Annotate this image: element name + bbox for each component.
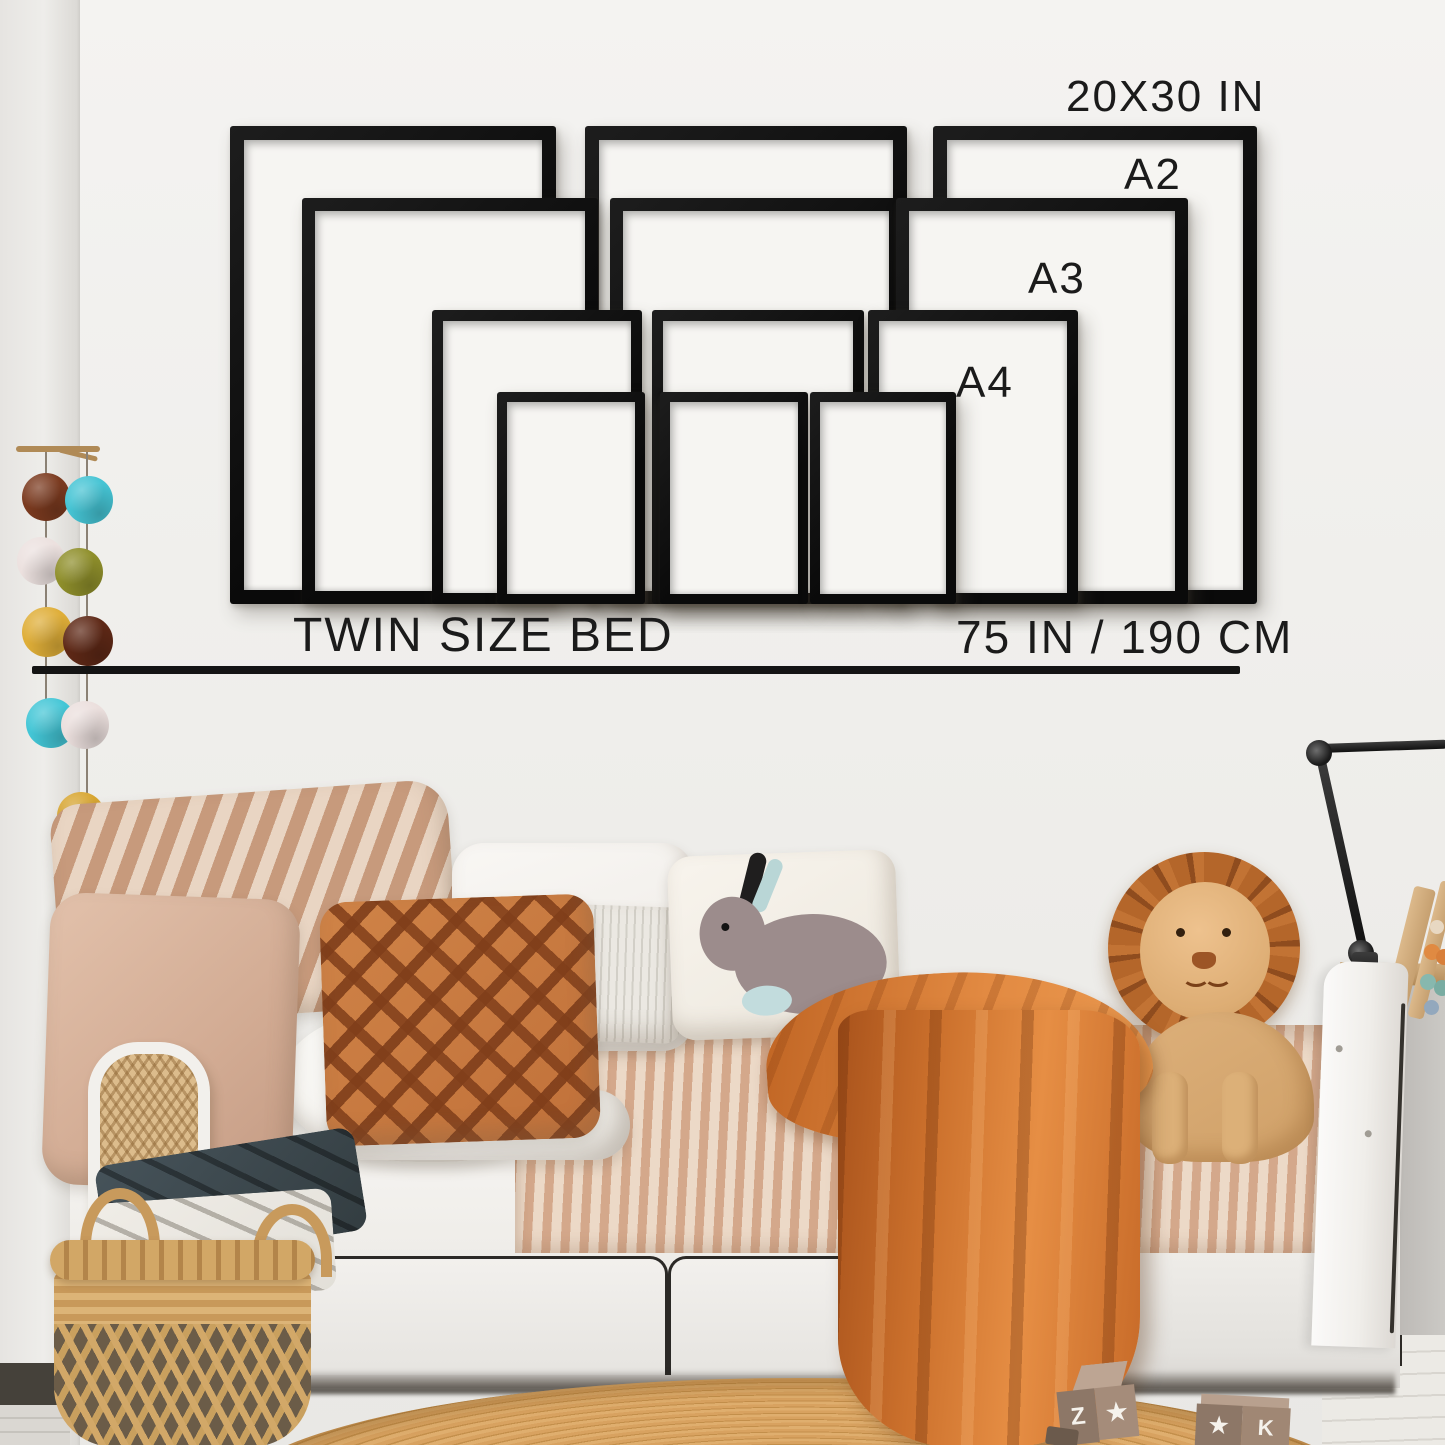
frame-a4-left <box>497 392 645 604</box>
footboard-screw-2 <box>1365 1130 1372 1137</box>
lamp-arm-diagonal <box>1315 752 1368 955</box>
abacus-bead-orange-2 <box>1436 949 1445 965</box>
block-face-star: ★ <box>1195 1404 1243 1445</box>
wicker-basket-rim <box>50 1240 315 1280</box>
reference-label-twin-bed: TWIN SIZE BED <box>293 608 674 663</box>
abacus-bead-teal-2 <box>1434 980 1445 996</box>
lion-eye-left <box>1176 928 1185 937</box>
lion-face <box>1140 882 1270 1020</box>
bed-footboard-panel <box>1311 961 1408 1349</box>
nightstand-shadow-recess <box>1400 985 1445 1335</box>
reference-value-width: 75 IN / 190 CM <box>956 610 1293 664</box>
footboard-screw <box>1336 1045 1343 1052</box>
block-face-star: ★ <box>1094 1384 1139 1440</box>
frame-mat <box>670 402 798 594</box>
pillow-rust-tufted <box>319 893 601 1146</box>
size-label-a4: A4 <box>956 358 1014 408</box>
lion-leg-right <box>1222 1072 1258 1164</box>
frame-a4-middle <box>660 392 808 604</box>
lion-leg-left <box>1152 1072 1188 1164</box>
pompom-cream-2 <box>61 701 109 749</box>
frame-mat <box>820 402 946 594</box>
size-label-a2: A2 <box>1124 150 1182 200</box>
pompom-teal <box>65 476 113 524</box>
lion-eye-right <box>1222 928 1231 937</box>
abacus-bead-cream <box>1430 920 1444 934</box>
lamp-joint-upper <box>1306 740 1332 766</box>
pompom-darkbrown <box>63 616 113 666</box>
lion-mouth-right <box>1204 966 1232 987</box>
size-label-20x30: 20X30 IN <box>1066 72 1265 122</box>
bed-width-scale-line <box>32 666 1240 674</box>
block-face-letter: K <box>1241 1406 1291 1445</box>
toy-block-cube-2: ★ K <box>1195 1394 1294 1445</box>
size-label-a3: A3 <box>1028 254 1086 304</box>
pompom-olive <box>55 548 103 596</box>
frame-mat <box>507 402 635 594</box>
nursery-size-guide-photo: 20X30 IN A2 A3 A4 TWIN SIZE BED 75 IN / … <box>0 0 1445 1445</box>
abacus-bead-blue <box>1424 1000 1439 1015</box>
pompom-brown <box>22 473 70 521</box>
toy-block-partial <box>1045 1426 1079 1445</box>
frame-a4-right <box>810 392 956 604</box>
